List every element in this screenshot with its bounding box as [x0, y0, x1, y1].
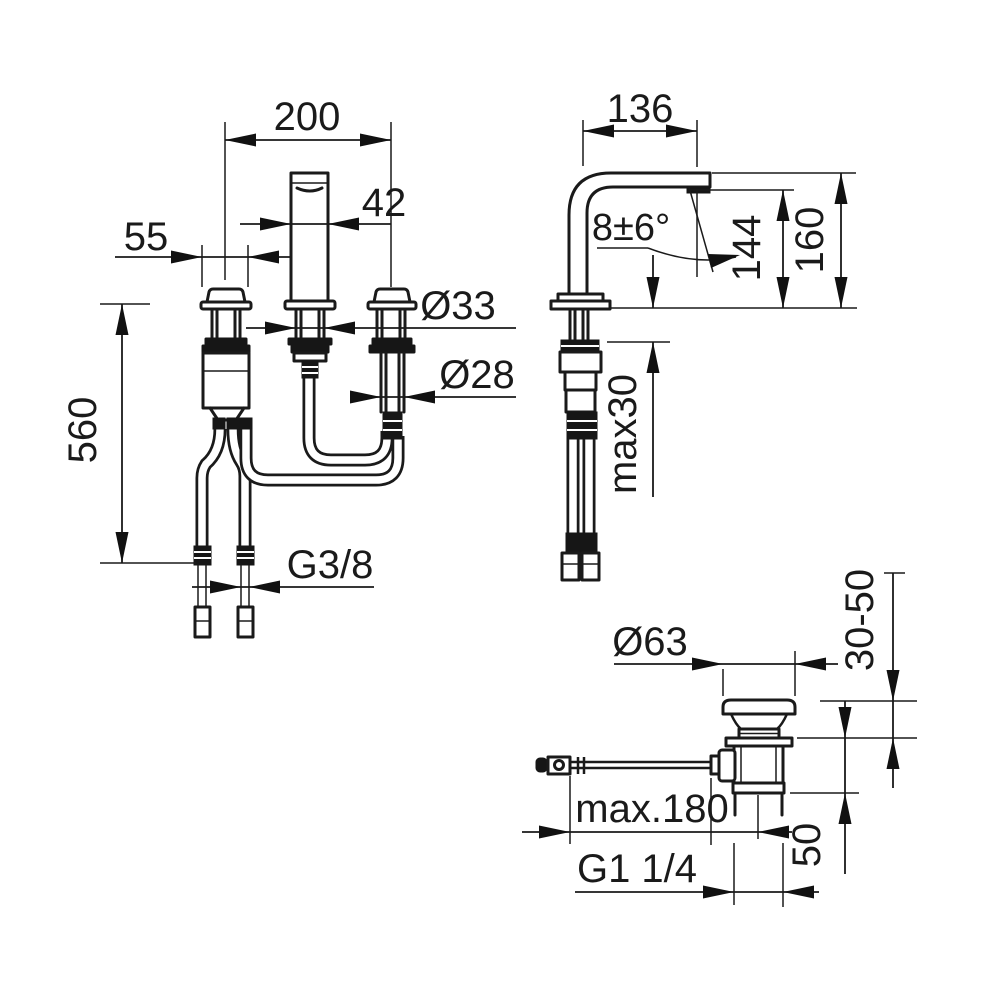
g38-nut	[582, 553, 599, 580]
valve-shank	[377, 309, 405, 338]
spout-hose-stub	[302, 361, 318, 378]
arrow	[404, 391, 435, 404]
spout-unit	[285, 173, 335, 378]
cartridge-mid	[565, 372, 596, 390]
left-valve-unit	[201, 289, 252, 429]
clevis-pins	[578, 757, 584, 774]
cartridge-low	[566, 390, 595, 412]
mounting-nut	[288, 338, 332, 345]
connect-hose-inner	[309, 378, 387, 460]
g38-fitting	[238, 607, 253, 637]
hose-connector	[567, 412, 597, 439]
g38-nut	[562, 553, 579, 580]
rosette-lower	[551, 301, 610, 309]
arrow	[647, 342, 660, 373]
waste-view: Ø63 30-50 50 max.180 G1 1/4	[522, 569, 917, 907]
pivot-hole	[555, 761, 564, 770]
dim-label-thread: G1 1/4	[577, 847, 697, 891]
dim-label-plug-dia: Ø63	[612, 620, 688, 664]
arrow	[225, 134, 256, 147]
arrow	[265, 322, 296, 335]
arrow	[887, 670, 900, 701]
hose-port	[213, 418, 225, 429]
hose-crimp	[237, 546, 254, 565]
g38-fitting	[195, 607, 210, 637]
dim-label-rod-length: max.180	[575, 787, 728, 831]
arrow	[260, 218, 291, 231]
plug-neck	[731, 714, 787, 729]
valve-cap	[207, 289, 245, 302]
technical-drawing-page: 200 42 55 Ø33 Ø28 560	[0, 0, 1000, 1000]
valve-body	[203, 353, 249, 408]
arrow	[647, 277, 660, 308]
faucet-dimension-drawing: 200 42 55 Ø33 Ø28 560	[0, 0, 1000, 1000]
arrow	[539, 826, 570, 839]
dim-label-valve-shank: Ø28	[439, 353, 515, 397]
connect-hose-inner-core	[309, 378, 387, 460]
arrow	[758, 826, 789, 839]
side-hoses	[573, 439, 589, 533]
hose-crimp	[566, 533, 581, 553]
arrow	[116, 304, 129, 335]
hose-port	[227, 418, 239, 429]
dim-label-outlet-height: 144	[725, 215, 769, 282]
dim-label-rosette: 55	[124, 215, 169, 259]
mounting-nut	[372, 338, 412, 345]
ball-housing	[719, 750, 735, 781]
ext-line	[723, 651, 795, 696]
ext-line	[734, 843, 783, 907]
arrow	[692, 658, 723, 671]
arrow	[210, 581, 241, 594]
arrow	[835, 173, 848, 204]
arrow	[777, 277, 790, 308]
hose-crimp	[582, 533, 597, 553]
hose-port	[240, 418, 252, 429]
waste-dimensions: Ø63 30-50 50 max.180 G1 1/4	[522, 569, 917, 907]
spout-rosette	[285, 301, 335, 309]
valve-cap	[374, 289, 410, 302]
dim-label-projection: 136	[607, 87, 674, 131]
arrow	[116, 532, 129, 563]
dim-label-body-depth: 50	[785, 823, 829, 868]
arrow	[783, 886, 814, 899]
valve-lower-shank	[381, 353, 404, 412]
front-view: 200 42 55 Ø33 Ø28 560	[61, 95, 516, 637]
dim-label-supply-thread: G3/8	[287, 543, 374, 587]
side-view: 136 8±6° 144 160 max30	[551, 87, 857, 580]
hose-connector	[383, 412, 402, 439]
cartridge-body	[560, 352, 601, 372]
arrow	[360, 134, 391, 147]
arrow	[835, 277, 848, 308]
arrow	[350, 391, 381, 404]
arrow	[248, 251, 279, 264]
pullrod	[570, 762, 711, 768]
dim-label-hose-length: 560	[61, 397, 105, 464]
arrow	[703, 886, 734, 899]
dim-label-spout-width: 42	[362, 181, 407, 225]
dim-label-spout-shank: Ø33	[420, 284, 496, 328]
spout-base-block	[294, 353, 326, 361]
mounting-nut	[369, 345, 415, 353]
valve-shank	[212, 309, 240, 338]
dim-label-total-height: 160	[788, 207, 832, 274]
supply-hose-ends	[194, 546, 254, 637]
arrow	[171, 251, 202, 264]
arrow	[249, 581, 280, 594]
arrow	[839, 707, 852, 738]
hose-crimp	[194, 546, 211, 565]
arrow	[324, 322, 355, 335]
ref-tick	[100, 304, 196, 563]
dim-label-deck-thickness: max30	[601, 374, 645, 494]
mounting-nut	[205, 338, 247, 345]
body-band	[733, 783, 784, 793]
arrow	[887, 738, 900, 769]
plug-cap	[723, 700, 795, 714]
side-dimensions: 136 8±6° 144 160 max30	[583, 87, 857, 497]
dim-label-spread: 200	[274, 95, 341, 139]
shank	[570, 309, 588, 340]
rod-tip	[536, 758, 547, 772]
arrow	[328, 218, 359, 231]
arrow	[795, 658, 826, 671]
valve-rosette	[201, 302, 251, 309]
dim-label-spray-angle: 8±6°	[592, 207, 670, 249]
ref-line	[790, 701, 917, 793]
arrow	[839, 793, 852, 824]
valve-rosette	[368, 302, 416, 309]
dim-label-clamp-range: 30-50	[838, 569, 882, 671]
right-valve-unit	[368, 289, 416, 439]
spout-shank	[296, 309, 324, 338]
